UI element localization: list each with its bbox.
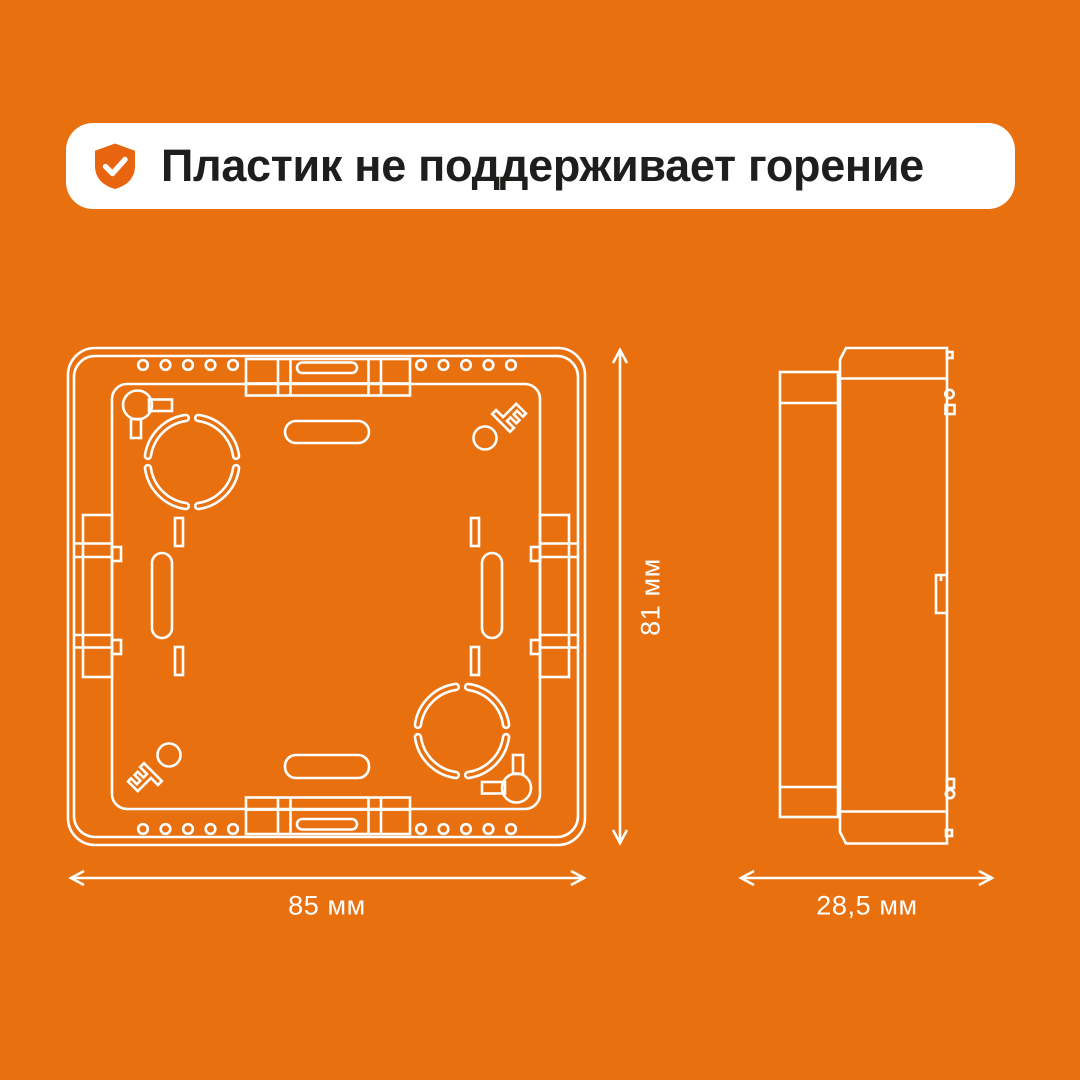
height-dimension-label: 81 мм — [636, 558, 667, 636]
vent-holes — [138, 360, 516, 834]
hole-bottom-left — [158, 744, 181, 767]
key-mark-top-right — [492, 397, 527, 432]
arc-slot-top-left — [148, 418, 236, 506]
height-dimension-arrow — [613, 350, 627, 843]
width-dimension-arrow — [71, 871, 584, 885]
hole-top-right — [474, 427, 497, 450]
width-dimension-label: 85 мм — [288, 891, 366, 922]
side-channel-left — [74, 515, 121, 677]
depth-dimension-arrow — [741, 871, 992, 885]
side-front-flange — [780, 372, 838, 817]
side-body — [840, 348, 947, 844]
arc-slot-bottom-right — [418, 687, 506, 775]
technical-drawing — [0, 0, 1080, 1080]
side-view-drawing — [780, 348, 955, 844]
depth-dimension-label: 28,5 мм — [816, 891, 917, 922]
mounting-tab-top — [246, 359, 410, 396]
mounting-tab-bottom — [246, 798, 410, 835]
front-view-drawing — [68, 348, 585, 845]
key-mark-bottom-left — [127, 763, 162, 798]
cable-slots — [152, 421, 502, 778]
side-channel-right — [531, 515, 578, 677]
